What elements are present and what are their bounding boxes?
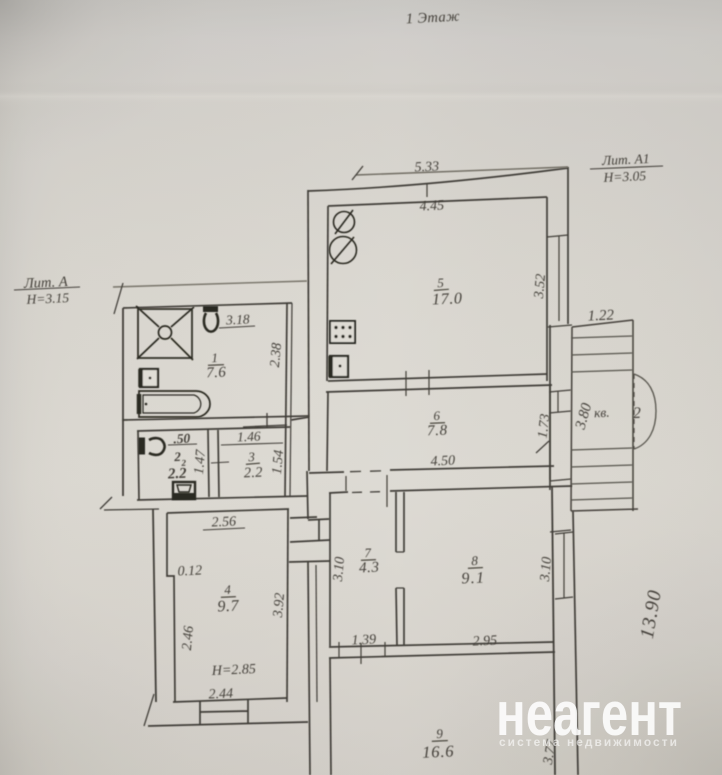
svg-text:2.2: 2.2 bbox=[243, 465, 263, 482]
svg-text:9.7: 9.7 bbox=[217, 598, 240, 616]
svg-text:1.54: 1.54 bbox=[270, 449, 287, 475]
svg-text:4: 4 bbox=[224, 582, 232, 597]
svg-text:4.50: 4.50 bbox=[430, 453, 455, 469]
svg-text:Лит. А1: Лит. А1 bbox=[601, 151, 650, 168]
svg-text:2: 2 bbox=[173, 449, 182, 464]
svg-text:16.6: 16.6 bbox=[422, 741, 455, 761]
svg-text:2.44: 2.44 bbox=[208, 686, 233, 702]
svg-text:Н=2.85: Н=2.85 bbox=[211, 662, 257, 679]
svg-text:1: 1 bbox=[211, 350, 218, 365]
svg-text:5.33: 5.33 bbox=[414, 159, 439, 175]
svg-text:3.52: 3.52 bbox=[532, 273, 549, 300]
svg-text:1 Этаж: 1 Этаж bbox=[405, 9, 460, 28]
svg-text:1.46: 1.46 bbox=[237, 428, 262, 444]
svg-text:9: 9 bbox=[436, 726, 444, 741]
svg-text:2.56: 2.56 bbox=[211, 514, 236, 530]
svg-text:7.6: 7.6 bbox=[206, 365, 227, 382]
svg-text:4.3: 4.3 bbox=[359, 560, 380, 577]
svg-text:3: 3 bbox=[247, 449, 256, 464]
svg-text:.50: .50 bbox=[173, 431, 191, 447]
svg-text:7.8: 7.8 bbox=[427, 423, 448, 440]
svg-text:3.10: 3.10 bbox=[331, 556, 348, 583]
svg-text:система недвижимости: система недвижимости bbox=[499, 737, 679, 749]
svg-text:5: 5 bbox=[437, 275, 445, 290]
svg-text:4.45: 4.45 bbox=[419, 198, 444, 214]
svg-text:1.22: 1.22 bbox=[587, 307, 614, 324]
svg-text:2.38: 2.38 bbox=[268, 342, 285, 368]
svg-text:8: 8 bbox=[471, 553, 479, 568]
svg-text:7: 7 bbox=[364, 545, 372, 560]
svg-text:2.95: 2.95 bbox=[472, 633, 497, 649]
svg-text:Н=3.05: Н=3.05 bbox=[602, 168, 646, 185]
svg-text:17.0: 17.0 bbox=[432, 290, 463, 308]
svg-text:1.39: 1.39 bbox=[351, 632, 376, 648]
svg-text:Лит. А: Лит. А bbox=[23, 274, 69, 292]
svg-text:2: 2 bbox=[633, 405, 642, 422]
svg-text:2.2: 2.2 bbox=[167, 466, 188, 483]
svg-text:3.92: 3.92 bbox=[271, 592, 288, 619]
svg-text:0.12: 0.12 bbox=[177, 563, 202, 579]
svg-text:9.1: 9.1 bbox=[461, 570, 486, 588]
svg-text:6: 6 bbox=[433, 408, 441, 423]
svg-text:1.73: 1.73 bbox=[536, 413, 554, 439]
svg-text:2.46: 2.46 bbox=[180, 625, 197, 651]
svg-text:1.47: 1.47 bbox=[192, 448, 209, 475]
svg-text:кв.: кв. bbox=[594, 405, 610, 421]
svg-text:3.10: 3.10 bbox=[538, 556, 555, 583]
svg-text:3.18: 3.18 bbox=[225, 311, 251, 327]
svg-text:Н=3.15: Н=3.15 bbox=[25, 290, 69, 307]
